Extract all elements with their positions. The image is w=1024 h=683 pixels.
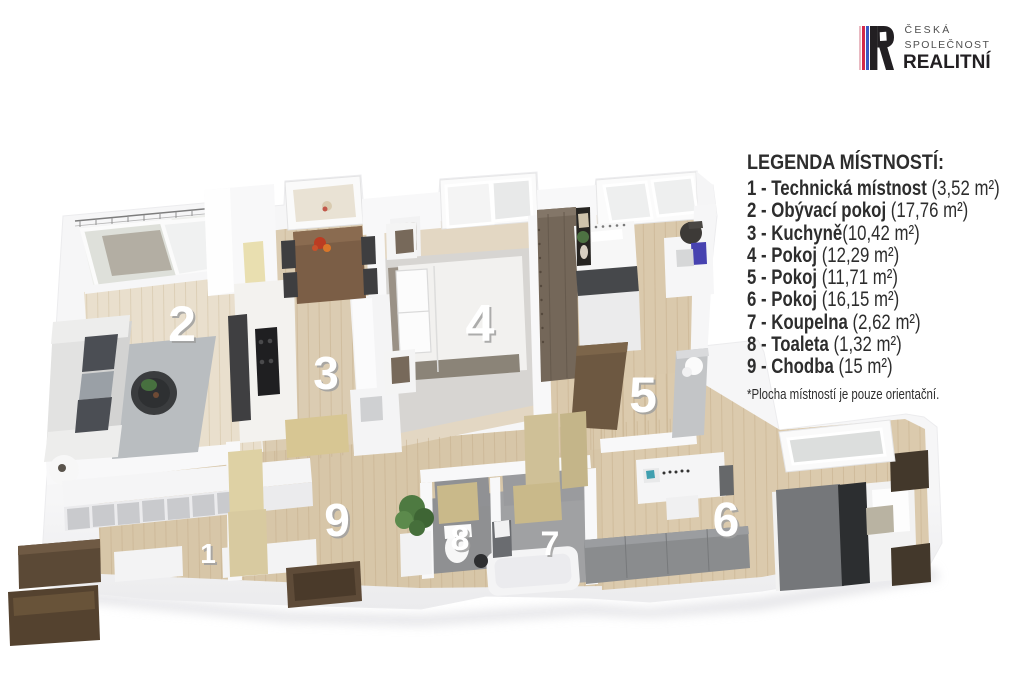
svg-text:4: 4 [466,295,495,353]
svg-text:5: 5 [629,367,657,423]
svg-text:8: 8 [451,520,470,558]
svg-text:3: 3 [313,347,339,399]
svg-text:2: 2 [168,296,196,352]
svg-text:7: 7 [541,525,560,563]
svg-text:9: 9 [324,494,350,546]
svg-text:1: 1 [200,538,216,569]
svg-text:6: 6 [713,494,740,547]
